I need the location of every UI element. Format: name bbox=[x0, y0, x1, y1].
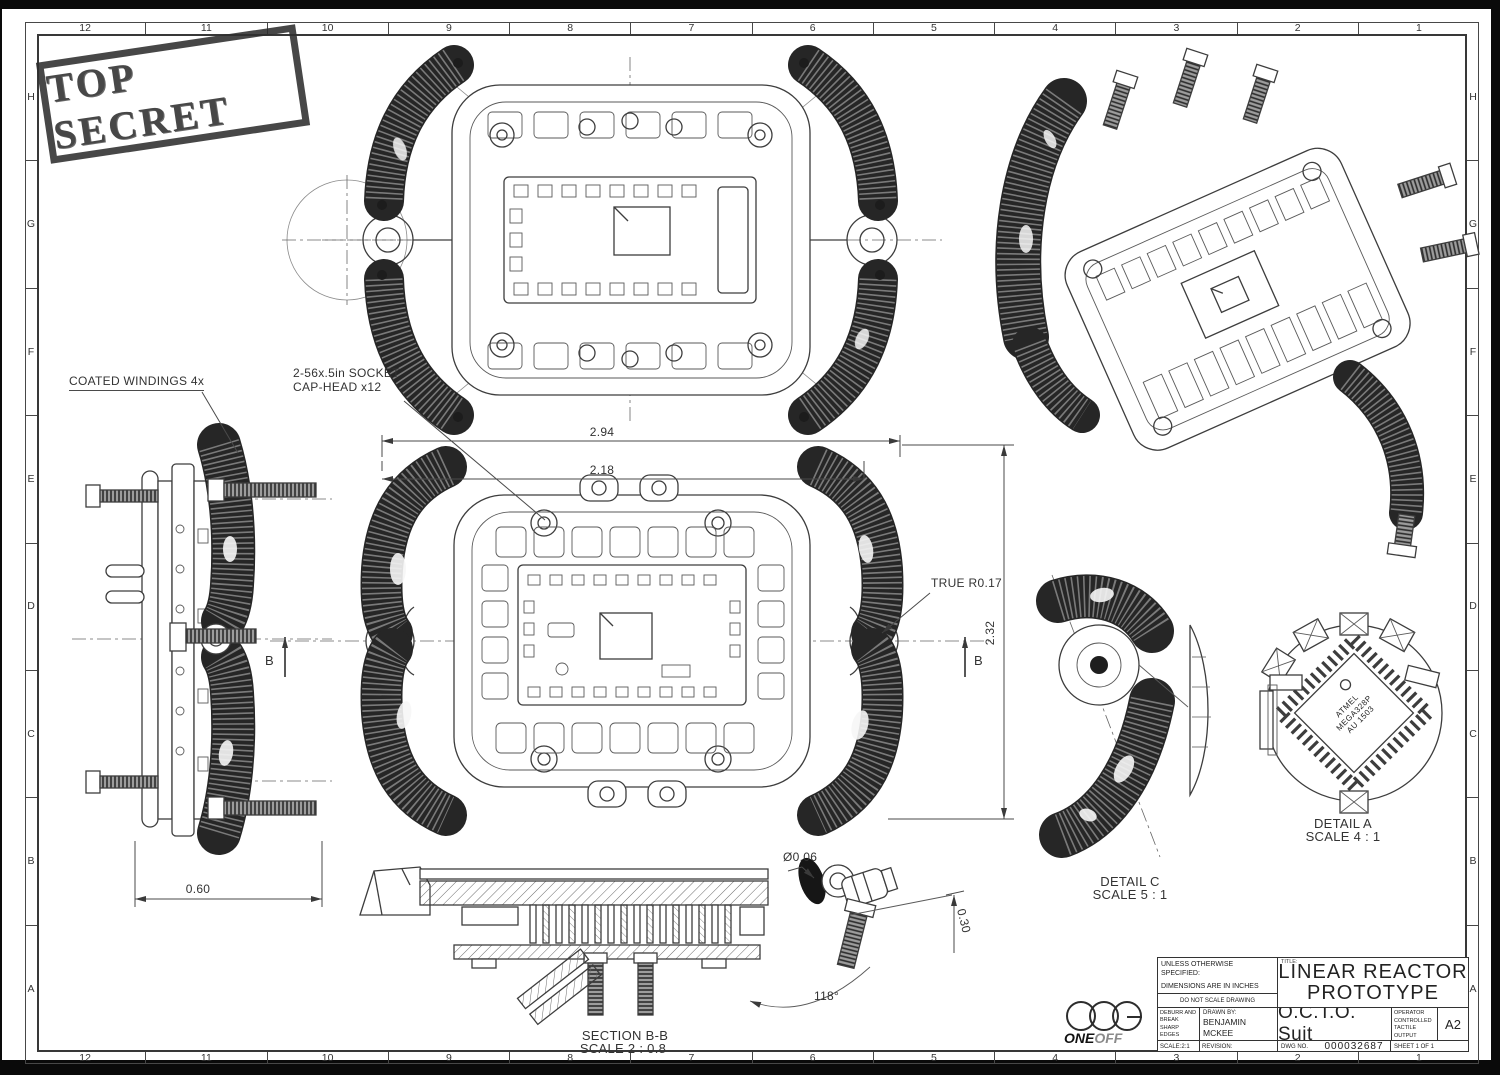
company-logo: ONEOFF bbox=[1064, 1001, 1156, 1051]
drawn-by-cell: DRAWN BY: BENJAMIN MCKEE bbox=[1200, 1008, 1278, 1040]
view-front bbox=[270, 401, 1014, 819]
callout-true-radius: TRUE R0.17 bbox=[931, 577, 1002, 591]
do-not-scale-note: DO NOT SCALE DRAWING bbox=[1158, 993, 1277, 1007]
view-side bbox=[72, 392, 332, 907]
drawing-title-line2: PROTOTYPE bbox=[1307, 983, 1439, 1004]
dim-218: 2.18 bbox=[590, 464, 615, 478]
section-arrow-label-left: B bbox=[265, 654, 274, 669]
detail-c-scale: SCALE 5 : 1 bbox=[1093, 888, 1168, 903]
deburr-line2: BREAK SHARP bbox=[1160, 1017, 1197, 1031]
deburr-line1: DEBURR AND bbox=[1160, 1010, 1197, 1017]
sheet-cell: SHEET 1 OF 1 bbox=[1391, 1041, 1468, 1052]
unless-otherwise-line2: SPECIFIED: bbox=[1161, 969, 1274, 978]
deburr-note-cell: DEBURR AND BREAK SHARP EDGES bbox=[1158, 1008, 1200, 1040]
view-section-bb bbox=[360, 854, 964, 1024]
drawing-title-line1: LINEAR REACTOR bbox=[1278, 962, 1467, 983]
title-block: UNLESS OTHERWISE SPECIFIED: DIMENSIONS A… bbox=[1157, 957, 1469, 1052]
drawn-by-last-name: MCKEE bbox=[1203, 1028, 1274, 1039]
detail-a-scale: SCALE 4 : 1 bbox=[1306, 830, 1381, 845]
subtitle-cell: O.C.T.O. Suit bbox=[1278, 1008, 1392, 1040]
sheet-size-cell: A2 bbox=[1438, 1008, 1468, 1040]
octo-line3: TACTILE bbox=[1394, 1025, 1435, 1032]
scale-cell: SCALE:2:1 bbox=[1158, 1041, 1200, 1052]
dim-294: 2.94 bbox=[590, 426, 615, 440]
deburr-line3: EDGES bbox=[1160, 1032, 1197, 1039]
callout-socket-cap: 2-56x.5in SOCKET CAP-HEAD x12 bbox=[293, 367, 400, 395]
revision-cell: REVISION: bbox=[1200, 1041, 1278, 1052]
callout-socket-line2: CAP-HEAD x12 bbox=[293, 381, 400, 395]
section-bb-scale: SCALE 2 : 0.8 bbox=[580, 1042, 666, 1057]
octo-line4: OUTPUT bbox=[1394, 1033, 1435, 1040]
dwg-no-label: DWG NO. bbox=[1281, 1044, 1308, 1050]
section-arrow-label-right: B bbox=[974, 654, 983, 669]
logo-text-off: OFF bbox=[1094, 1030, 1122, 1046]
drawing-sheet: 121110987654321 121110987654321 HGFEDCBA… bbox=[2, 9, 1491, 1060]
drawn-by-first-name: BENJAMIN bbox=[1203, 1017, 1274, 1028]
unless-otherwise-line1: UNLESS OTHERWISE bbox=[1161, 960, 1274, 969]
callout-angle: 118° bbox=[814, 990, 839, 1004]
callout-coated-windings: COATED WINDINGS 4x bbox=[69, 375, 204, 391]
view-isometric bbox=[1018, 48, 1479, 557]
logo-wordmark: ONEOFF bbox=[1064, 1030, 1122, 1046]
dim-060: 0.60 bbox=[186, 883, 211, 897]
octo-expansion-cell: OPERATOR CONTROLLED TACTILE OUTPUT bbox=[1392, 1008, 1438, 1040]
logo-circles-icon bbox=[1066, 1001, 1135, 1031]
octo-line1: OPERATOR bbox=[1394, 1010, 1435, 1017]
title-cell: TITLE: LINEAR REACTOR PROTOTYPE bbox=[1278, 958, 1468, 1007]
dim-232: 2.32 bbox=[984, 621, 998, 646]
view-detail-c bbox=[1052, 575, 1211, 857]
callout-diameter: Ø0.06 bbox=[783, 851, 817, 865]
callout-socket-line1: 2-56x.5in SOCKET bbox=[293, 367, 400, 381]
dwg-no-cell: DWG NO. 000032687 bbox=[1278, 1041, 1391, 1052]
dwg-number: 000032687 bbox=[1324, 1041, 1383, 1052]
dimensions-units-note: DIMENSIONS ARE IN INCHES bbox=[1161, 982, 1274, 991]
octo-line2: CONTROLLED bbox=[1394, 1018, 1435, 1025]
tolerance-note-cell: UNLESS OTHERWISE SPECIFIED: DIMENSIONS A… bbox=[1158, 958, 1278, 1007]
title-label: TITLE: bbox=[1281, 959, 1298, 965]
drawn-by-label: DRAWN BY: bbox=[1203, 1010, 1274, 1016]
drawing-canvas bbox=[2, 9, 1500, 1075]
logo-text-one: ONE bbox=[1064, 1030, 1094, 1046]
